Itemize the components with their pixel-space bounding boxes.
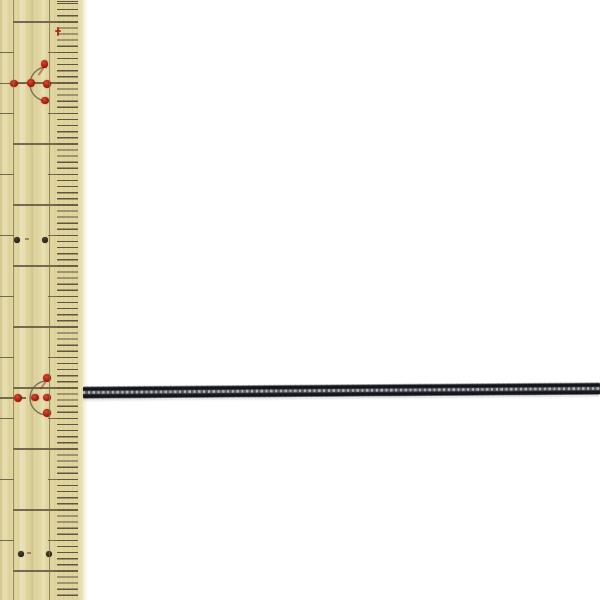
ruler-halfcm-tick <box>48 174 78 175</box>
red-plus-mark <box>55 30 61 32</box>
ruler-cm-line <box>13 326 78 327</box>
ruler-cm-line <box>13 448 78 449</box>
red-compass-dot <box>43 80 51 88</box>
small-dash-mark <box>25 238 29 239</box>
wooden-ruler <box>0 0 87 600</box>
black-cord <box>83 382 600 399</box>
ruler-halfcm-tick <box>48 235 78 236</box>
red-compass-dot <box>27 79 35 87</box>
black-ruler-dot <box>14 237 20 243</box>
ruler-halfcm-tick <box>48 357 78 358</box>
ruler-halfcm-tick <box>48 52 78 53</box>
ruler-cm-line <box>13 143 78 144</box>
ruler-cm-line <box>13 204 78 205</box>
black-ruler-dot <box>42 237 48 243</box>
product-photo <box>0 0 600 600</box>
ruler-groove-line-right <box>49 0 50 600</box>
red-compass-dot <box>10 80 18 88</box>
small-dash-mark <box>27 552 31 553</box>
ruler-halfcm-tick <box>48 296 78 297</box>
ruler-halfcm-tick <box>48 479 78 480</box>
ruler-halfcm-tick <box>48 540 78 541</box>
red-compass-dot <box>43 374 51 382</box>
ruler-cm-line <box>13 265 78 266</box>
ruler-cm-line <box>13 21 78 22</box>
ruler-cm-line <box>13 570 78 571</box>
red-compass-dot <box>43 394 51 402</box>
ruler-halfcm-tick <box>48 113 78 114</box>
red-compass-dot <box>14 394 22 402</box>
ruler-groove-line-left <box>13 0 14 600</box>
ruler-cm-line <box>13 509 78 510</box>
red-compass-dot <box>31 394 39 402</box>
red-compass-dot <box>41 60 49 68</box>
black-ruler-dot <box>18 551 24 557</box>
red-compass-dot <box>43 409 51 417</box>
